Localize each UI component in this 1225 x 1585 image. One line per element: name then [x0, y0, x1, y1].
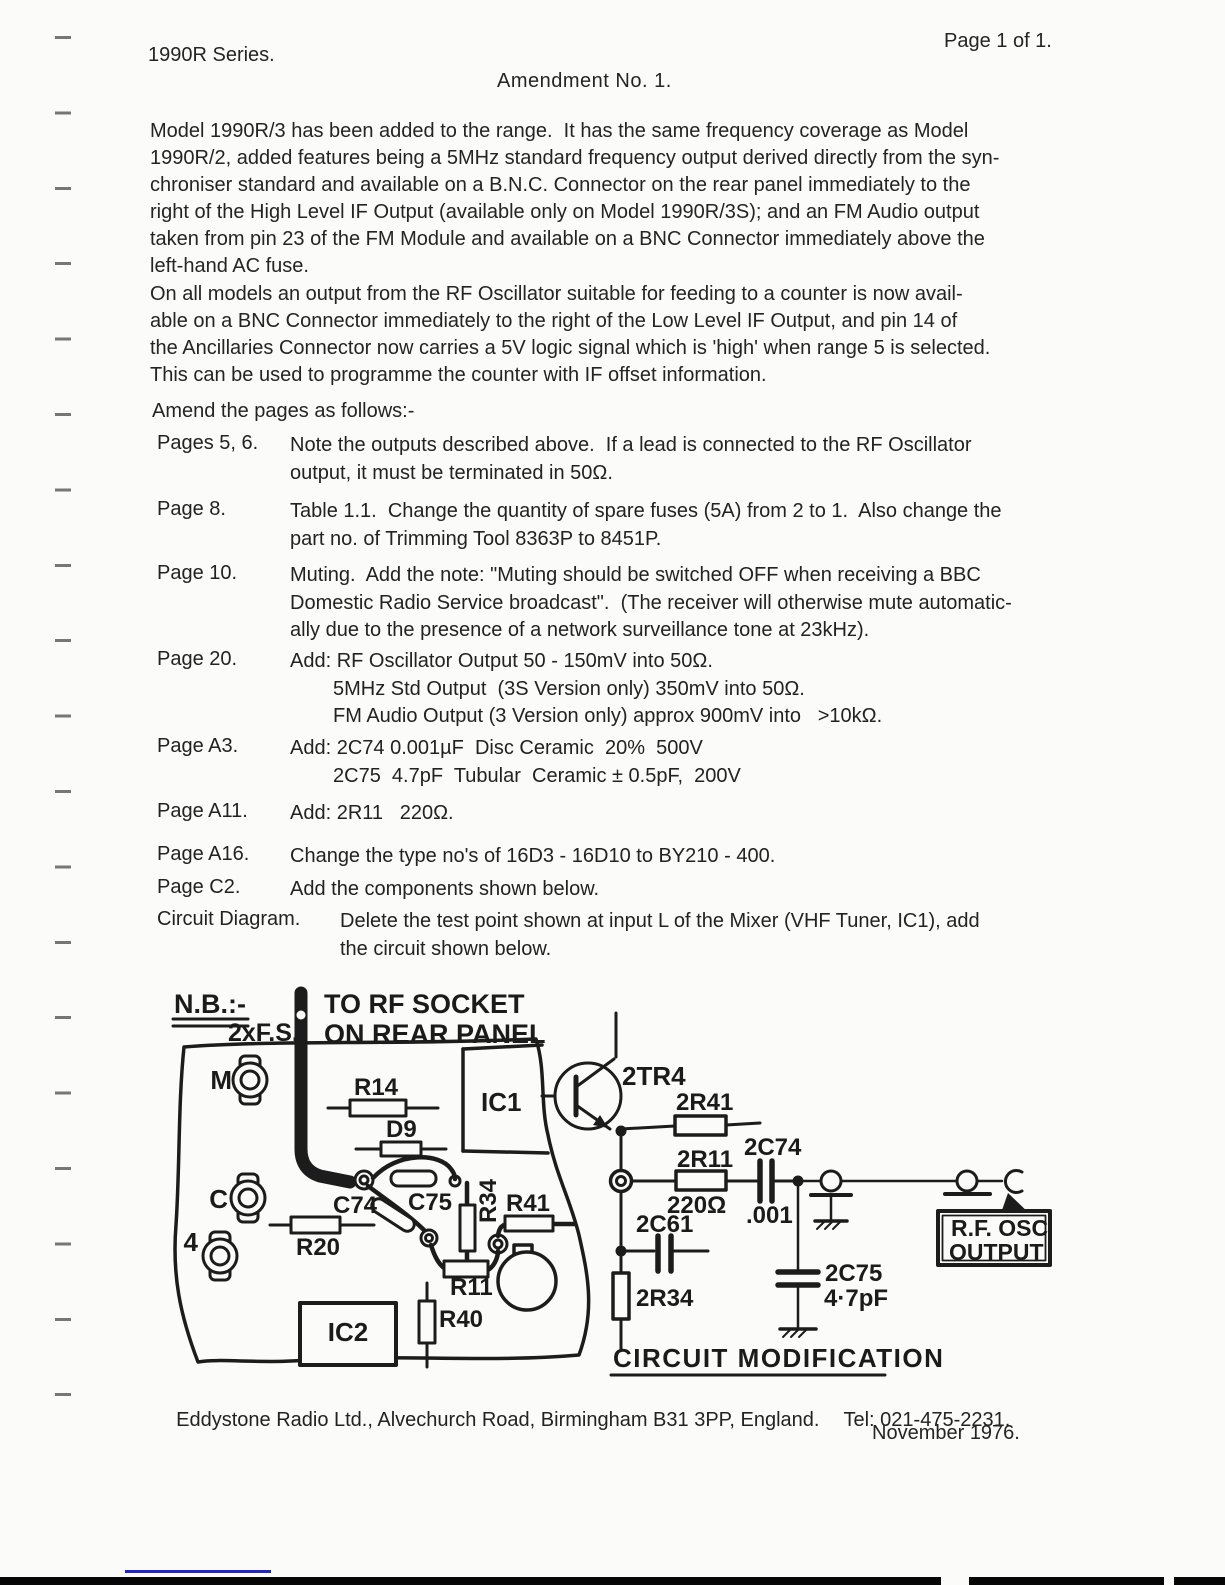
amendment-line: Domestic Radio Service broadcast". (The …	[290, 590, 1012, 618]
amendment-line: part no. of Trimming Tool 8363P to 8451P…	[290, 526, 1002, 554]
resistor-2r11	[632, 1171, 758, 1190]
c75s-value: 4·7pF	[824, 1285, 888, 1312]
amendment-line: Add: 2C74 0.001µF Disc Ceramic 20% 500V	[290, 735, 741, 763]
amendment-line: output, it must be terminated in 50Ω.	[290, 460, 972, 488]
amendment-label: Page C2.	[157, 876, 240, 899]
amendment-label: Page 20.	[157, 648, 237, 671]
bottom-blue-line	[125, 1570, 271, 1573]
circuit-modification-diagram: N.B.:- 2xF.S. TO RF SOCKET ON REAR PANEL…	[148, 983, 1060, 1383]
pcb-r34	[460, 1205, 475, 1251]
output-label-2: OUTPUT	[949, 1239, 1044, 1265]
pcb-r40-label: R40	[439, 1306, 483, 1333]
pcb-c75	[391, 1171, 436, 1186]
resistor-2r41	[621, 1116, 760, 1135]
paragraph-line: left-hand AC fuse.	[150, 253, 999, 280]
paragraph-1: Model 1990R/3 has been added to the rang…	[150, 118, 999, 280]
hole-c-label: C	[209, 1184, 228, 1214]
hole-4-label: 4	[184, 1227, 199, 1257]
amendment-line: FM Audio Output (3 Version only) approx …	[333, 703, 882, 731]
paragraph-2: On all models an output from the RF Osci…	[150, 281, 990, 389]
to-rf-socket-label-1: TO RF SOCKET	[324, 989, 525, 1019]
transistor-2tr4	[542, 1013, 621, 1129]
amendment-row-page-10: Page 10. Muting. Add the note: "Muting s…	[157, 562, 1012, 645]
bottom-scan-bar	[969, 1577, 1164, 1585]
pcb-r20-label: R20	[296, 1234, 340, 1261]
amendment-row-page-8: Page 8. Table 1.1. Change the quantity o…	[157, 498, 1002, 553]
paragraph-line: chroniser standard and available on a B.…	[150, 172, 999, 199]
emitter-node	[616, 1126, 627, 1137]
eyelet-node	[611, 1171, 632, 1192]
amendment-row-page-a11: Page A11. Add: 2R11 220Ω.	[157, 800, 454, 828]
r34s-label: 2R34	[636, 1285, 694, 1312]
pcb-r14-label: R14	[354, 1074, 399, 1101]
paragraph-line: On all models an output from the RF Osci…	[150, 281, 990, 308]
pcb-can	[498, 1245, 556, 1310]
amendment-line: 2C75 4.7pF Tubular Ceramic ± 0.5pF, 200V	[333, 763, 741, 791]
feedthrough-1	[811, 1171, 851, 1229]
to-rf-socket-label-2: ON REAR PANEL	[324, 1019, 546, 1049]
tr4-label: 2TR4	[622, 1061, 686, 1091]
paragraph-line: 1990R/2, added features being a 5MHz sta…	[150, 145, 999, 172]
page-number: Page 1 of 1.	[944, 28, 1052, 55]
pcb-r41-label: R41	[506, 1190, 550, 1217]
amendment-row-page-20: Page 20. Add: RF Oscillator Output 50 - …	[157, 648, 882, 731]
pcb-d9	[356, 1142, 446, 1156]
amendment-line: the circuit shown below.	[340, 936, 980, 964]
paragraph-line: the Ancillaries Connector now carries a …	[150, 335, 990, 362]
amendment-row-page-c2: Page C2. Add the components shown below.	[157, 876, 599, 904]
amendment-row-pages-5-6: Pages 5, 6. Note the outputs described a…	[157, 432, 972, 487]
schematic: 2TR4 2R41 2R11 220Ω 2C74 .001	[542, 1013, 1050, 1375]
hole-c	[231, 1174, 265, 1222]
c61s-label: 2C61	[636, 1211, 693, 1238]
amendment-line: Note the outputs described above. If a l…	[290, 432, 972, 460]
feedthrough-2	[945, 1171, 990, 1194]
amendment-label: Page A3.	[157, 735, 238, 758]
pcb-r34-label: R34	[475, 1178, 502, 1223]
amendment-row-circuit-diagram: Circuit Diagram. Delete the test point s…	[157, 908, 980, 963]
company-address: Eddystone Radio Ltd., Alvechurch Road, B…	[176, 1409, 819, 1431]
amendment-line: 5MHz Std Output (3S Version only) 350mV …	[333, 676, 882, 704]
hole-m	[233, 1056, 267, 1104]
c74s-label: 2C74	[744, 1134, 802, 1161]
pcb-r40	[419, 1283, 435, 1367]
paragraph-line: taken from pin 23 of the FM Module and a…	[150, 226, 999, 253]
paragraph-line: This can be used to programme the counte…	[150, 362, 990, 389]
hole-4	[203, 1232, 237, 1280]
pcb-c74-label: C74	[333, 1192, 378, 1219]
pcb-c75-label: C75	[408, 1189, 452, 1216]
amendment-row-page-a16: Page A16. Change the type no's of 16D3 -…	[157, 843, 775, 871]
pcb-d9-label: D9	[386, 1116, 417, 1143]
amendment-line: Table 1.1. Change the quantity of spare …	[290, 498, 1002, 526]
amendment-line: Muting. Add the note: "Muting should be …	[290, 562, 1012, 590]
pcb-r14	[328, 1100, 438, 1116]
pcb-r11-label: R11	[450, 1274, 493, 1301]
paragraph-line: right of the High Level IF Output (avail…	[150, 199, 999, 226]
output-connector	[1005, 1171, 1022, 1193]
pcb-ic1-label: IC1	[481, 1087, 521, 1117]
diagram-caption: CIRCUIT MODIFICATION	[613, 1343, 944, 1373]
amendment-line: Change the type no's of 16D3 - 16D10 to …	[290, 843, 775, 871]
amendment-label: Page 8.	[157, 498, 226, 521]
pcb-layout: M C 4 R14 D9	[175, 993, 589, 1367]
amend-intro: Amend the pages as follows:-	[152, 398, 414, 425]
paragraph-line: able on a BNC Connector immediately to t…	[150, 308, 990, 335]
amendment-label: Page 10.	[157, 562, 237, 585]
amendment-line: ally due to the presence of a network su…	[290, 617, 1012, 645]
amendment-line: Add the components shown below.	[290, 876, 599, 904]
paragraph-line: Model 1990R/3 has been added to the rang…	[150, 118, 999, 145]
r41s-label: 2R41	[676, 1089, 733, 1116]
r11s-label: 2R11	[677, 1146, 733, 1173]
c74s-value: .001	[746, 1202, 793, 1229]
page-title: Amendment No. 1.	[497, 68, 672, 95]
amendment-label: Pages 5, 6.	[157, 432, 258, 455]
series-label: 1990R Series.	[148, 42, 275, 69]
amendment-line: Delete the test point shown at input L o…	[340, 908, 980, 936]
cable-tip	[297, 1011, 306, 1020]
footer-date: November 1976.	[872, 1420, 1020, 1447]
hole-m-label: M	[210, 1065, 232, 1095]
amendment-line: Add: 2R11 220Ω.	[290, 800, 454, 828]
c75s-label: 2C75	[825, 1260, 882, 1287]
nb-label: N.B.:-	[174, 989, 246, 1019]
pcb-r20	[270, 1217, 374, 1233]
bottom-scan-bar	[1174, 1577, 1225, 1585]
pcb-r41	[505, 1216, 553, 1231]
amendment-label: Circuit Diagram.	[157, 908, 300, 931]
capacitor-2c61	[621, 1236, 708, 1271]
amendment-label: Page A11.	[157, 800, 248, 823]
amendment-label: Page A16.	[157, 843, 249, 866]
capacitor-2c74	[760, 1161, 794, 1201]
amendment-row-page-a3: Page A3. Add: 2C74 0.001µF Disc Ceramic …	[157, 735, 741, 790]
amendment-line: Add: RF Oscillator Output 50 - 150mV int…	[290, 648, 882, 676]
margin-scan-marks	[55, 36, 71, 1396]
pcb-ic2-label: IC2	[328, 1317, 368, 1347]
bottom-scan-bar	[0, 1577, 941, 1585]
output-label-1: R.F. OSC	[951, 1215, 1048, 1241]
resistor-2r34	[613, 1257, 629, 1349]
